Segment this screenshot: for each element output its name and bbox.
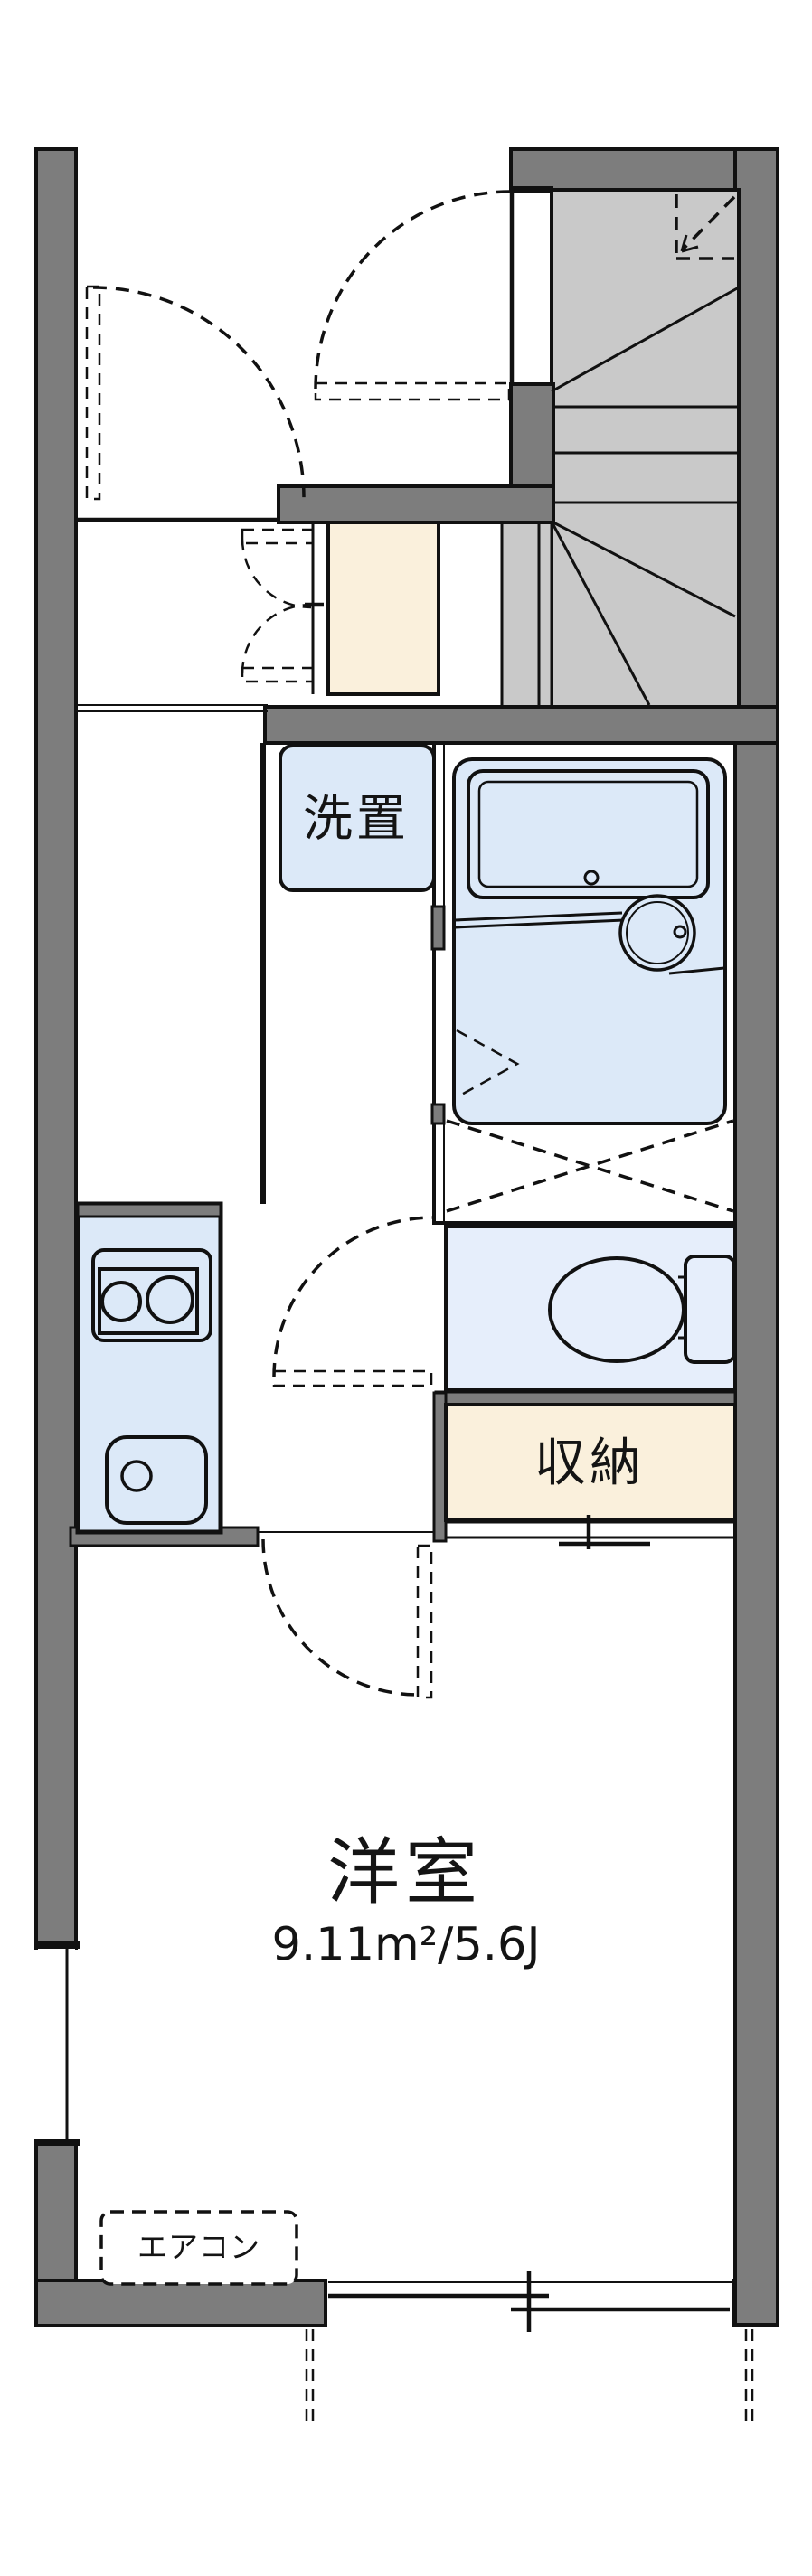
- kitchen-backsplash-edge: [78, 1204, 221, 1217]
- hall-closet-door-swing-arc: [93, 287, 304, 498]
- aircon-label: エアコン: [137, 2233, 260, 2262]
- left-window-bottom-cap: [34, 2139, 80, 2146]
- toilet-tank: [685, 1256, 734, 1362]
- left-window: [38, 1949, 75, 2140]
- kitchen: [78, 1204, 221, 1532]
- entry-washroom-wall-band: [279, 486, 553, 522]
- hall-closet-door-leaf: [87, 287, 99, 499]
- toilet-door-swing-arc: [274, 1217, 433, 1377]
- stairwell-floor: [552, 190, 739, 707]
- stove-burner-right-icon: [147, 1277, 193, 1322]
- western-room-area-label: 9.11m²/5.6J: [271, 1923, 540, 1969]
- balcony-projection-lines: [307, 2329, 752, 2425]
- right-wall: [735, 707, 778, 2325]
- entry-door-leaf: [316, 383, 509, 400]
- bottom-wall-left: [36, 2280, 326, 2326]
- toilet-door-leaf: [274, 1371, 431, 1386]
- entry-door-recess: [513, 193, 550, 382]
- stairwell: [502, 149, 778, 710]
- washroom-left-wall: [260, 743, 266, 1204]
- washer-place-label: 洗置: [303, 794, 410, 844]
- left-window-top-cap: [34, 1941, 80, 1949]
- toilet-storage-divider-wall: [436, 1392, 735, 1405]
- bathtub: [468, 771, 708, 898]
- stair-landing-strip: [502, 522, 552, 707]
- shoe-cabinet-swing-arc-top: [242, 539, 311, 607]
- bathroom: [432, 743, 735, 1223]
- western-room-door-swing-arc: [263, 1539, 419, 1695]
- bathroom-door-stub-upper: [432, 907, 444, 949]
- washroom-top-wall-band: [265, 707, 778, 743]
- shoe-cabinet-door-leaf-bottom: [242, 668, 313, 682]
- floorplan-page: 洗置 収納 洋室 9.11m²/5.6J エアコン: [0, 0, 812, 2576]
- genkan: [242, 522, 439, 694]
- western-room-label: 洋室: [327, 1837, 483, 1909]
- bath-basin: [620, 896, 694, 970]
- left-wall-upper: [36, 149, 76, 1948]
- bathroom-door-stub-lower: [432, 1105, 444, 1123]
- toilet-bowl: [550, 1258, 684, 1361]
- entry-door-swing-arc: [316, 192, 510, 389]
- storage-label: 収納: [534, 1438, 645, 1490]
- western-room-door-leaf: [418, 1546, 431, 1697]
- toilet-room: [274, 1217, 735, 1390]
- shoe-cabinet: [328, 522, 439, 694]
- left-wall-lower: [36, 2144, 76, 2284]
- shoe-cabinet-door-leaf-top: [242, 530, 313, 543]
- shoe-cabinet-swing-arc-bottom: [242, 605, 311, 673]
- floorplan-drawing: [0, 0, 812, 2576]
- stove-burner-left-icon: [102, 1283, 140, 1321]
- stair-right-wall: [735, 149, 778, 710]
- recess-top-cap: [509, 186, 553, 193]
- entry-hall: [87, 192, 510, 499]
- entry-door-stub-wall: [511, 384, 553, 490]
